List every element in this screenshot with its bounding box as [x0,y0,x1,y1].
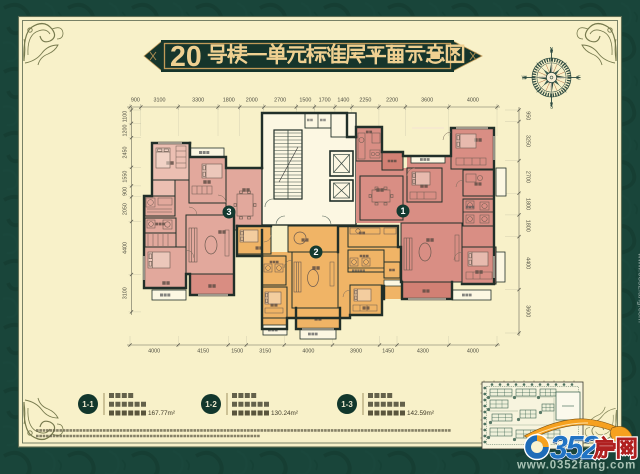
svg-text:4000: 4000 [302,349,314,355]
svg-text:3600: 3600 [421,98,433,104]
svg-text:1: 1 [400,206,405,216]
svg-text:1200: 1200 [123,125,129,137]
svg-text:2450: 2450 [123,147,129,159]
svg-text:2: 2 [313,247,318,257]
svg-text:1800: 1800 [525,220,531,232]
svg-text:www.0352fang.com: www.0352fang.com [637,252,640,323]
svg-text:900: 900 [131,98,140,104]
svg-text:W: W [522,75,527,81]
svg-text:1-2: 1-2 [205,400,217,409]
svg-text:1500: 1500 [231,349,243,355]
svg-text:3100: 3100 [123,287,129,299]
svg-text:2700: 2700 [525,171,531,183]
svg-text:3300: 3300 [192,98,204,104]
svg-text:2000: 2000 [246,98,258,104]
svg-text:1800: 1800 [223,98,235,104]
svg-text:3900: 3900 [350,349,362,355]
svg-text:4400: 4400 [123,242,129,254]
svg-text:1700: 1700 [319,98,331,104]
svg-text:130.24m²: 130.24m² [271,410,298,417]
svg-text:950: 950 [525,111,531,120]
svg-text:4000: 4000 [467,349,479,355]
svg-text:4150: 4150 [197,349,209,355]
svg-text:1-3: 1-3 [341,400,353,409]
svg-text:3600: 3600 [525,305,531,317]
svg-text:900: 900 [123,187,129,196]
svg-text:1400: 1400 [337,98,349,104]
svg-text:20: 20 [170,41,202,73]
svg-text:4300: 4300 [417,349,429,355]
svg-text:4400: 4400 [525,257,531,269]
svg-text:1-1: 1-1 [82,400,94,409]
svg-text:1550: 1550 [123,171,129,183]
svg-text:2050: 2050 [123,203,129,215]
svg-text:2200: 2200 [386,98,398,104]
svg-text:167.77m²: 167.77m² [148,410,175,417]
svg-text:2700: 2700 [274,98,286,104]
svg-text:N: N [550,47,554,53]
svg-text:1800: 1800 [525,198,531,210]
svg-text:3250: 3250 [525,135,531,147]
svg-text:2250: 2250 [359,98,371,104]
svg-text:3: 3 [226,207,231,217]
svg-text:4000: 4000 [467,98,479,104]
svg-text:1500: 1500 [299,98,311,104]
svg-text:1450: 1450 [382,349,394,355]
svg-text:1100: 1100 [123,111,129,123]
svg-text:3150: 3150 [259,349,271,355]
svg-text:www.0352fang.com: www.0352fang.com [516,460,636,472]
svg-text:3100: 3100 [154,98,166,104]
svg-text:142.59m²: 142.59m² [407,410,434,417]
svg-text:4000: 4000 [148,349,160,355]
